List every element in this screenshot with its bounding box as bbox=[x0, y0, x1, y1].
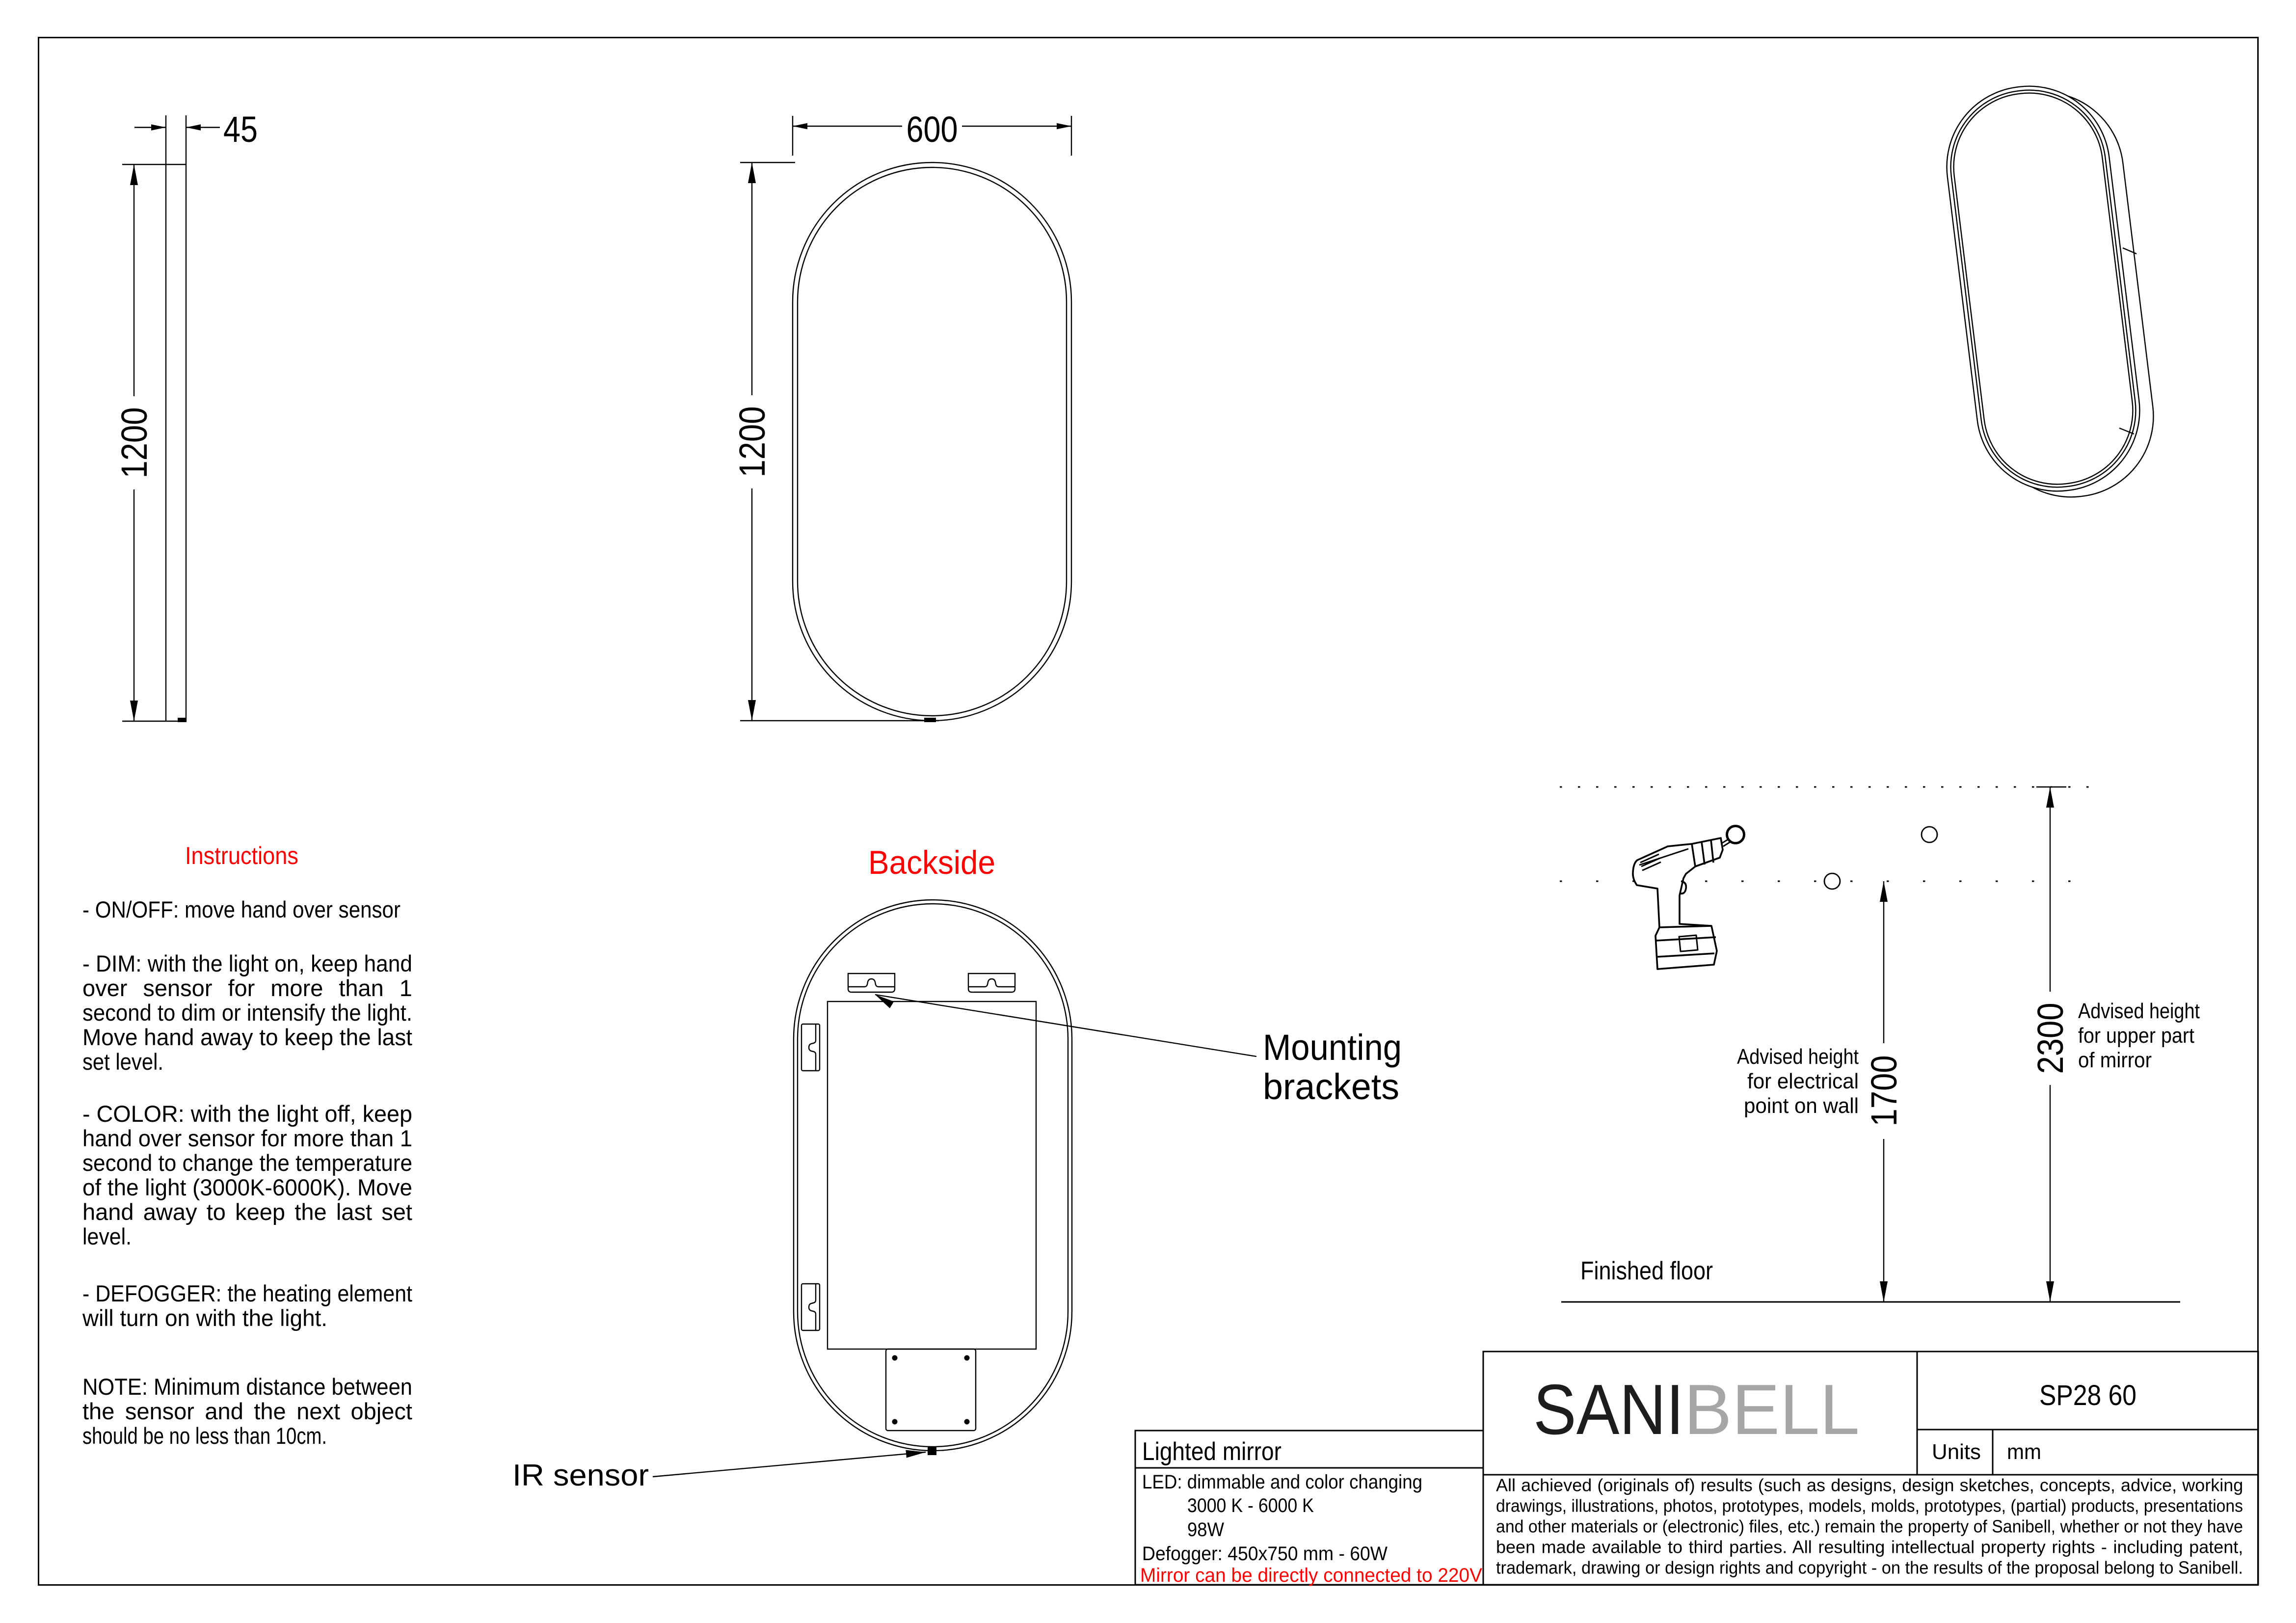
svg-text:1200: 1200 bbox=[732, 406, 773, 478]
svg-text:should be no less than 10cm.: should be no less than 10cm. bbox=[82, 1423, 327, 1449]
svg-text:and other materials or (electr: and other materials or (electronic) file… bbox=[1496, 1516, 2243, 1537]
svg-text:Finished floor: Finished floor bbox=[1580, 1257, 1713, 1285]
svg-text:Instructions: Instructions bbox=[185, 842, 298, 869]
svg-text:for upper part: for upper part bbox=[2078, 1024, 2194, 1048]
svg-text:All achieved (originals of) re: All achieved (originals of) results (suc… bbox=[1496, 1475, 2243, 1495]
svg-text:3000 K - 6000 K: 3000 K - 6000 K bbox=[1187, 1495, 1314, 1516]
svg-text:1200: 1200 bbox=[114, 407, 155, 479]
svg-text:second to dim or intensify the: second to dim or intensify the light. bbox=[82, 1000, 412, 1026]
svg-text:hand over sensor for more than: hand over sensor for more than 1 bbox=[82, 1125, 412, 1151]
svg-text:Move hand away to keep the las: Move hand away to keep the last bbox=[82, 1024, 412, 1050]
svg-text:600: 600 bbox=[907, 109, 958, 150]
svg-text:point on wall: point on wall bbox=[1744, 1094, 1859, 1118]
svg-text:Lighted mirror: Lighted mirror bbox=[1142, 1437, 1281, 1466]
svg-text:- COLOR: with the light off, k: - COLOR: with the light off, keep bbox=[82, 1101, 412, 1127]
svg-text:been made available to third p: been made available to third parties. Al… bbox=[1496, 1537, 2243, 1557]
svg-text:BELL: BELL bbox=[1684, 1370, 1860, 1449]
svg-text:- DIM: with the light on, keep: - DIM: with the light on, keep hand bbox=[82, 950, 412, 976]
svg-text:brackets: brackets bbox=[1263, 1066, 1399, 1107]
svg-text:45: 45 bbox=[223, 109, 258, 150]
svg-text:Advised height: Advised height bbox=[2078, 999, 2200, 1023]
svg-text:Mounting: Mounting bbox=[1263, 1027, 1402, 1068]
svg-text:will turn on with the light.: will turn on with the light. bbox=[82, 1305, 327, 1331]
svg-text:trademark, drawing or design r: trademark, drawing or design rights and … bbox=[1496, 1558, 2243, 1578]
svg-text:98W: 98W bbox=[1187, 1519, 1224, 1541]
svg-text:drawings, illustrations, photo: drawings, illustrations, photos, prototy… bbox=[1496, 1496, 2243, 1516]
svg-text:for electrical: for electrical bbox=[1747, 1069, 1859, 1093]
svg-text:mm: mm bbox=[2007, 1440, 2041, 1464]
svg-text:Advised height: Advised height bbox=[1737, 1045, 1859, 1069]
svg-text:LED: dimmable and color changi: LED: dimmable and color changing bbox=[1142, 1471, 1422, 1493]
svg-text:Defogger: 450x750 mm - 60W: Defogger: 450x750 mm - 60W bbox=[1142, 1543, 1388, 1565]
svg-text:over sensor for more than 1: over sensor for more than 1 bbox=[82, 975, 412, 1001]
svg-text:set level.: set level. bbox=[82, 1049, 163, 1075]
svg-text:IR sensor: IR sensor bbox=[512, 1459, 649, 1492]
svg-text:1700: 1700 bbox=[1864, 1055, 1904, 1127]
svg-text:the sensor and the next object: the sensor and the next object bbox=[82, 1398, 412, 1424]
svg-text:Backside: Backside bbox=[868, 844, 995, 881]
svg-text:- DEFOGGER: the heating elemen: - DEFOGGER: the heating element bbox=[82, 1280, 412, 1306]
svg-text:SANI: SANI bbox=[1533, 1370, 1684, 1449]
svg-text:of mirror: of mirror bbox=[2078, 1048, 2152, 1072]
svg-text:hand away to keep the last set: hand away to keep the last set bbox=[82, 1199, 412, 1225]
svg-text:2300: 2300 bbox=[2030, 1003, 2071, 1074]
svg-text:level.: level. bbox=[82, 1223, 132, 1249]
svg-text:- ON/OFF: move hand over senso: - ON/OFF: move hand over sensor bbox=[82, 896, 400, 922]
svg-text:Units: Units bbox=[1932, 1440, 1981, 1464]
svg-text:NOTE: Minimum distance between: NOTE: Minimum distance between bbox=[82, 1374, 412, 1400]
svg-text:SP28 60: SP28 60 bbox=[2039, 1380, 2136, 1411]
svg-text:of the light (3000K-6000K). Mo: of the light (3000K-6000K). Move bbox=[82, 1174, 412, 1200]
svg-text:Mirror can be directly connect: Mirror can be directly connected to 220V bbox=[1140, 1565, 1482, 1586]
svg-text:second to change the temperatu: second to change the temperature bbox=[82, 1150, 412, 1176]
